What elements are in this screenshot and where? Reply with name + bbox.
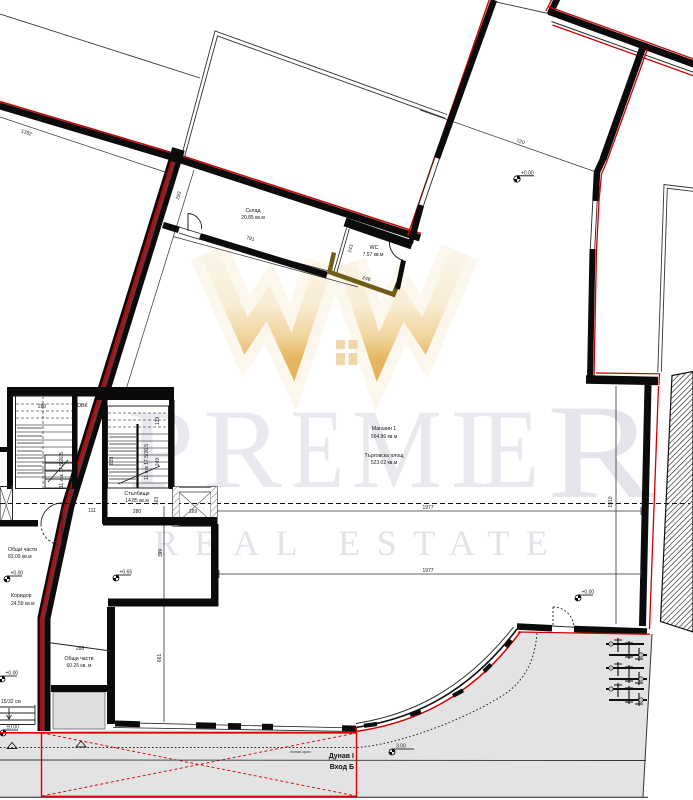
svg-text:3.00: 3.00 bbox=[396, 744, 406, 750]
svg-text:523.02 кв.м: 523.02 кв.м bbox=[371, 460, 398, 466]
svg-text:Стълбище: Стълбище bbox=[124, 491, 149, 497]
svg-text:839: 839 bbox=[109, 457, 115, 466]
svg-text:Общи части: Общи части bbox=[8, 547, 37, 553]
svg-text:14.85 кв.м: 14.85 кв.м bbox=[125, 498, 149, 504]
svg-text:ОВК: ОВК bbox=[77, 403, 88, 409]
svg-text:Коридор: Коридор bbox=[11, 593, 32, 599]
svg-text:1910: 1910 bbox=[608, 496, 614, 507]
svg-text:564.96 кв.м: 564.96 кв.м bbox=[371, 434, 398, 440]
svg-text:15/32 см: 15/32 см bbox=[1, 699, 21, 705]
svg-text:11 изк 17.5/26.5: 11 изк 17.5/26.5 bbox=[59, 452, 65, 488]
svg-text:M: M bbox=[352, 387, 442, 512]
svg-text:111: 111 bbox=[88, 508, 96, 514]
svg-text:E: E bbox=[481, 387, 539, 512]
svg-text:83.09 кв.м: 83.09 кв.м bbox=[8, 554, 32, 560]
svg-text:+0.65: +0.65 bbox=[120, 570, 133, 576]
svg-text:±0.00: ±0.00 bbox=[7, 725, 20, 731]
svg-text:Магазин 1: Магазин 1 bbox=[372, 426, 396, 432]
svg-text:Вход Б: Вход Б bbox=[330, 764, 354, 771]
svg-text:24.59 кв.м: 24.59 кв.м bbox=[11, 601, 35, 607]
svg-text:Търговска площ: Търговска площ bbox=[364, 453, 404, 459]
svg-text:11 изк 17.5/26.5: 11 изк 17.5/26.5 bbox=[144, 444, 150, 480]
svg-text:60.25 кв. м: 60.25 кв. м bbox=[67, 663, 93, 669]
svg-text:1977: 1977 bbox=[422, 568, 433, 574]
svg-text:163: 163 bbox=[154, 497, 160, 506]
svg-text:20.85 кв.м: 20.85 кв.м bbox=[241, 215, 265, 221]
svg-text:280: 280 bbox=[133, 509, 142, 515]
svg-text:+0.00: +0.00 bbox=[582, 590, 595, 596]
svg-text:249: 249 bbox=[155, 458, 161, 467]
svg-text:169: 169 bbox=[189, 509, 198, 515]
svg-text:+0.00: +0.00 bbox=[11, 571, 24, 577]
svg-text:280: 280 bbox=[38, 404, 47, 410]
svg-text:139: 139 bbox=[155, 417, 161, 426]
svg-text:399: 399 bbox=[158, 549, 164, 558]
svg-text:R: R bbox=[547, 378, 655, 527]
svg-text:Общи части: Общи части bbox=[64, 656, 93, 662]
svg-text:661: 661 bbox=[157, 654, 163, 663]
svg-text:Склад: Склад bbox=[245, 208, 260, 214]
svg-text:линия кран: линия кран bbox=[290, 749, 311, 754]
svg-text:+0.00: +0.00 bbox=[6, 671, 19, 677]
svg-text:WC: WC bbox=[370, 245, 379, 251]
svg-text:1977: 1977 bbox=[422, 505, 433, 511]
svg-text:7.57 кв.м: 7.57 кв.м bbox=[363, 252, 384, 258]
svg-text:288: 288 bbox=[76, 646, 85, 652]
svg-text:+0.00: +0.00 bbox=[521, 171, 534, 177]
svg-text:E: E bbox=[291, 387, 344, 512]
svg-text:Дунав I: Дунав I bbox=[329, 753, 354, 760]
